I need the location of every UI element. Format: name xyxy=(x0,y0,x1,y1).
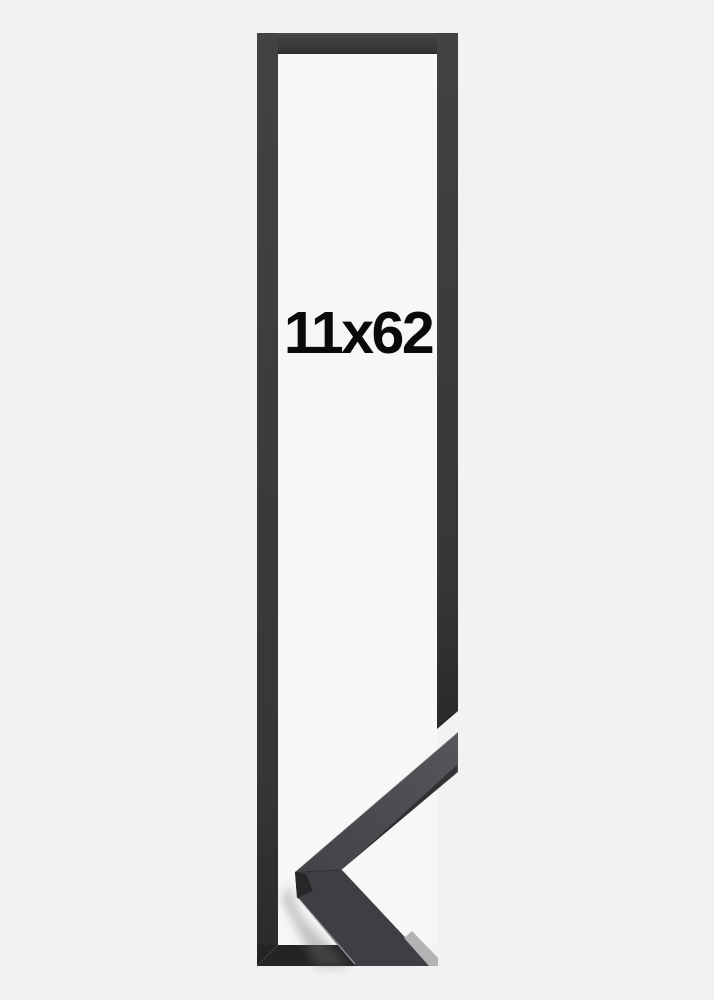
frame-opening xyxy=(278,54,437,945)
frame-preview-graphic xyxy=(0,0,714,1000)
frame-left-bar-shading xyxy=(257,33,278,966)
size-label: 11x62 xyxy=(278,303,438,363)
product-image: 11x62 xyxy=(0,0,714,1000)
frame-top-bar-shading xyxy=(257,33,458,54)
size-label-text: 11x62 xyxy=(284,299,432,367)
frame-right-bar-shading xyxy=(437,33,458,729)
